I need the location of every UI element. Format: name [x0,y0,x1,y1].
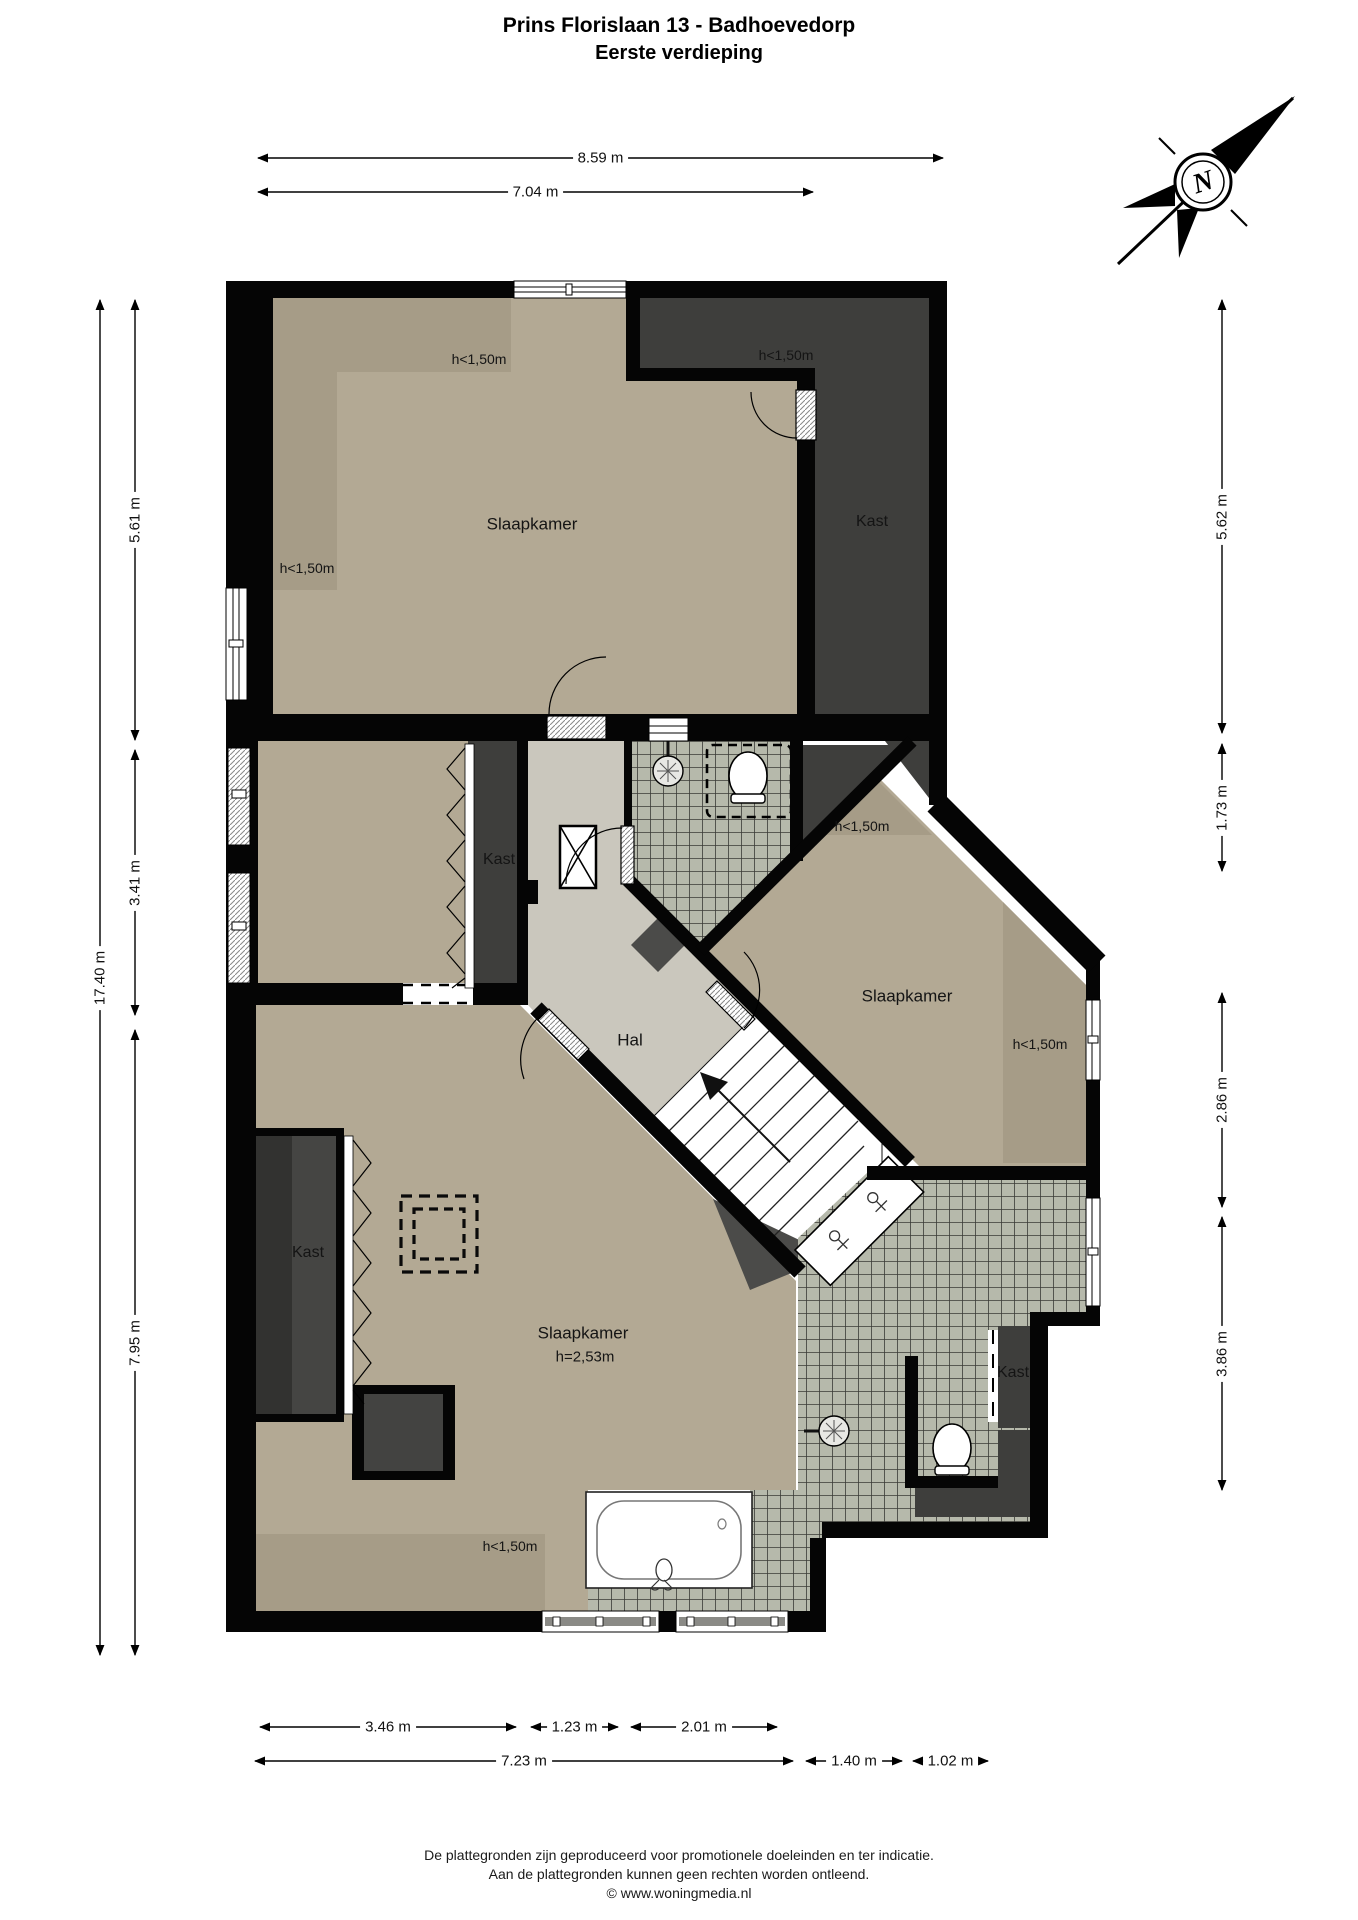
window-bottom-2 [676,1611,788,1632]
room-label-kast-bottom-right: Kast [997,1365,1029,1381]
window-right-bedroom [1086,1000,1100,1080]
shower-head2-spokes [823,1420,845,1442]
room-middle-left [247,741,468,983]
dim-left-341-label: 3.41 m [128,855,143,911]
footer-line-2: Aan de plattegronden kunnen geen rechten… [0,1866,1358,1882]
dim-left-795-label: 7.95 m [128,1315,143,1371]
annotation-h150-bottom: h<1,50m [483,1539,538,1553]
room-label-kast-bottom-left: Kast [292,1245,324,1261]
sloped-ceiling-zone-left [273,372,337,590]
window-left-middle-1 [228,748,250,845]
toilet-bottom-base [935,1466,969,1475]
dim-bottom-346-label: 3.46 m [360,1720,416,1735]
room-label-slaapkamer-right: Slaapkamer [862,988,953,1005]
chimney-block [352,1385,455,1480]
dim-bottom-723-label: 7.23 m [496,1754,552,1769]
window-bathroom-right [1086,1198,1100,1306]
floorplan-page: Prins Florislaan 13 - Badhoevedorp Eerst… [0,0,1358,1920]
dim-top-704-label: 7.04 m [508,185,564,200]
toilet-top-base [731,794,765,803]
window-top [514,281,626,298]
room-label-hal: Hal [617,1032,643,1049]
dim-left-1740-label: 17.40 m [93,945,108,1009]
window-bottom-1 [542,1611,659,1632]
toilet-top-icon [729,752,767,800]
annotation-h150-top-left: h<1,50m [452,352,507,366]
annotation-h150-right-top: h<1,50m [835,819,890,833]
room-label-kast-top-right: Kast [856,514,888,530]
compass-north-icon: N [1118,96,1295,264]
dim-right-173-label: 1.73 m [1215,780,1230,836]
room-label-kast-middle: Kast [483,852,515,868]
dim-right-562-label: 5.62 m [1215,489,1230,545]
window-toilet [649,718,688,741]
shower-head-spokes [657,760,679,782]
dim-bottom-201-label: 2.01 m [676,1720,732,1735]
bathtub [586,1492,752,1590]
toilet-bottom-icon [933,1424,971,1472]
annotation-h150-left: h<1,50m [280,561,335,575]
footer-disclaimer: De plattegronden zijn geproduceerd voor … [0,1844,1358,1901]
dim-bottom-102-label: 1.02 m [923,1754,979,1769]
window-left-middle-2 [228,873,250,983]
closet-bottom-left [248,1128,344,1422]
dim-left-561-label: 5.61 m [128,492,143,548]
annotation-h150-right-side: h<1,50m [1013,1037,1068,1051]
floorplan-drawing: N [0,0,1358,1920]
footer-copyright: © www.woningmedia.nl [0,1885,1358,1901]
room-label-slaapkamer-top: Slaapkamer [487,516,578,533]
room-label-height-253: h=2,53m [556,1350,615,1365]
dim-bottom-123-label: 1.23 m [547,1720,603,1735]
dim-top-859-label: 8.59 m [573,151,629,166]
footer-line-1: De plattegronden zijn geproduceerd voor … [0,1847,1358,1863]
dim-bottom-140-label: 1.40 m [826,1754,882,1769]
passage-dashed [403,983,473,1005]
room-label-slaapkamer-bottom: Slaapkamer [538,1325,629,1342]
dim-right-386-label: 3.86 m [1215,1326,1230,1382]
dim-right-286-label: 2.86 m [1215,1072,1230,1128]
window-left-top [226,588,247,700]
annotation-h150-top-right: h<1,50m [759,348,814,362]
